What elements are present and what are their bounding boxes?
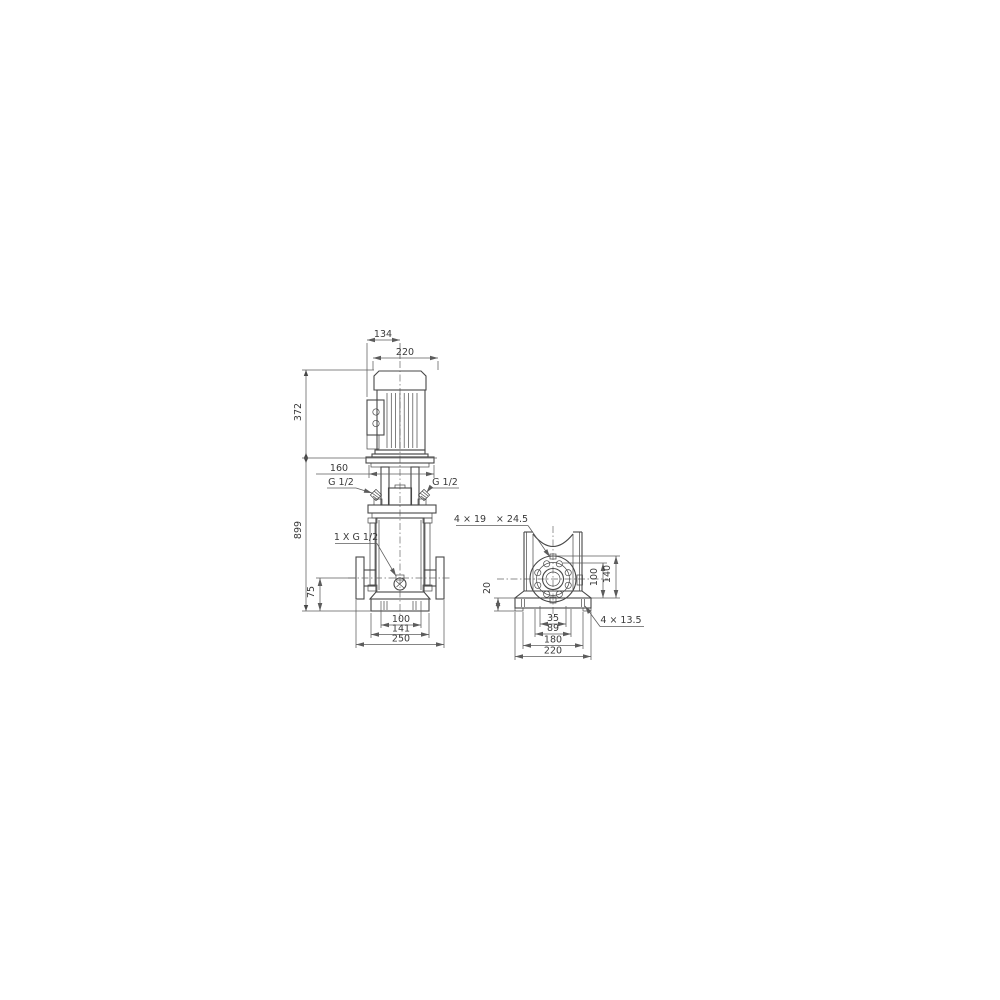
dimension-160: 160 [316,463,434,478]
dim-899-label: 899 [293,521,304,539]
dim-250-label: 250 [392,634,410,645]
dimension-20: 20 [482,582,516,611]
pump-dimensional-drawing: 134 220 372 899 160 G 1/2 [0,0,1000,1000]
dim-220-base-label: 220 [544,646,562,657]
dim-140-label: 140 [602,565,613,583]
callout-port-right: G 1/2 [427,477,460,493]
dim-180-label: 180 [544,635,562,646]
callout-flange-holes: 4 × 19 × 24.5 [454,514,550,557]
callout-drain: 1 X G 1/2 [334,532,396,576]
port-left-label: G 1/2 [328,477,354,488]
front-view: 134 220 372 899 160 G 1/2 [293,329,459,648]
dim-134-label: 134 [374,329,392,340]
drain-label: 1 X G 1/2 [334,532,378,543]
dim-20-label: 20 [482,582,493,594]
dim-75-label: 75 [306,586,317,598]
flange-holes-count-label: 4 × 19 [454,514,486,525]
dim-89-label: 89 [547,623,559,634]
staybolt-right [425,523,430,585]
callout-base-holes: 4 × 13.5 [585,606,644,627]
terminal-box [367,400,384,449]
flange-holes-diameter-label: × 24.5 [496,514,528,525]
flange-face [530,554,576,603]
motor-fins [387,393,417,448]
dim-372-label: 372 [293,403,304,421]
pump-head [368,505,436,518]
dimension-220-motor: 220 [373,347,438,370]
dimension-134: 134 [367,329,400,397]
side-view: 4 × 19 × 24.5 20 100 140 35 [454,514,644,660]
motor [367,371,428,457]
callout-port-left: G 1/2 [327,477,372,493]
drawing-canvas: 134 220 372 899 160 G 1/2 [0,0,1000,1000]
dim-220-motor-label: 220 [396,347,414,358]
cable-entry-top [373,409,379,415]
dim-100-side-label: 100 [589,568,600,586]
port-right-label: G 1/2 [432,477,458,488]
base-holes-label: 4 × 13.5 [600,615,641,626]
dimension-75: 75 [306,578,356,611]
vent-plug-left [370,489,382,505]
cable-entry-bottom [373,420,379,426]
vent-plug-right [418,489,430,505]
dim-160-label: 160 [330,463,348,474]
